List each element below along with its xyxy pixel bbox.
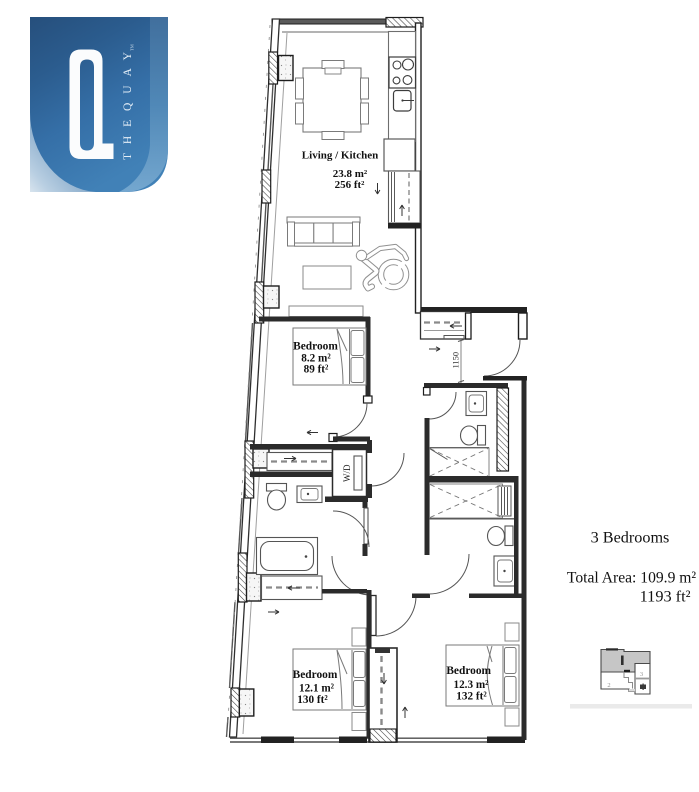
svg-text:2: 2	[607, 682, 610, 689]
svg-text:1193 ft²: 1193 ft²	[640, 587, 691, 606]
svg-text:256 ft²: 256 ft²	[335, 179, 366, 191]
svg-text:89 ft²: 89 ft²	[304, 364, 329, 376]
svg-text:3: 3	[640, 671, 643, 678]
svg-text:Bedroom: Bedroom	[293, 341, 338, 353]
svg-text:W/D: W/D	[342, 464, 352, 482]
svg-text:Bedroom: Bedroom	[293, 669, 338, 681]
svg-text:Bedroom: Bedroom	[446, 665, 491, 677]
svg-text:3 Bedrooms: 3 Bedrooms	[591, 529, 670, 547]
svg-text:THEQUAY: THEQUAY	[122, 43, 134, 160]
svg-text:TM: TM	[130, 44, 135, 51]
svg-text:130 ft²: 130 ft²	[297, 694, 328, 706]
svg-text:12.1 m²: 12.1 m²	[299, 683, 335, 695]
svg-text:Total Area: 109.9 m²: Total Area: 109.9 m²	[567, 570, 696, 587]
svg-text:1150: 1150	[451, 352, 461, 369]
svg-text:132 ft²: 132 ft²	[456, 691, 487, 703]
svg-text:Living / Kitchen: Living / Kitchen	[302, 150, 378, 162]
svg-text:12.3 m²: 12.3 m²	[453, 679, 489, 691]
